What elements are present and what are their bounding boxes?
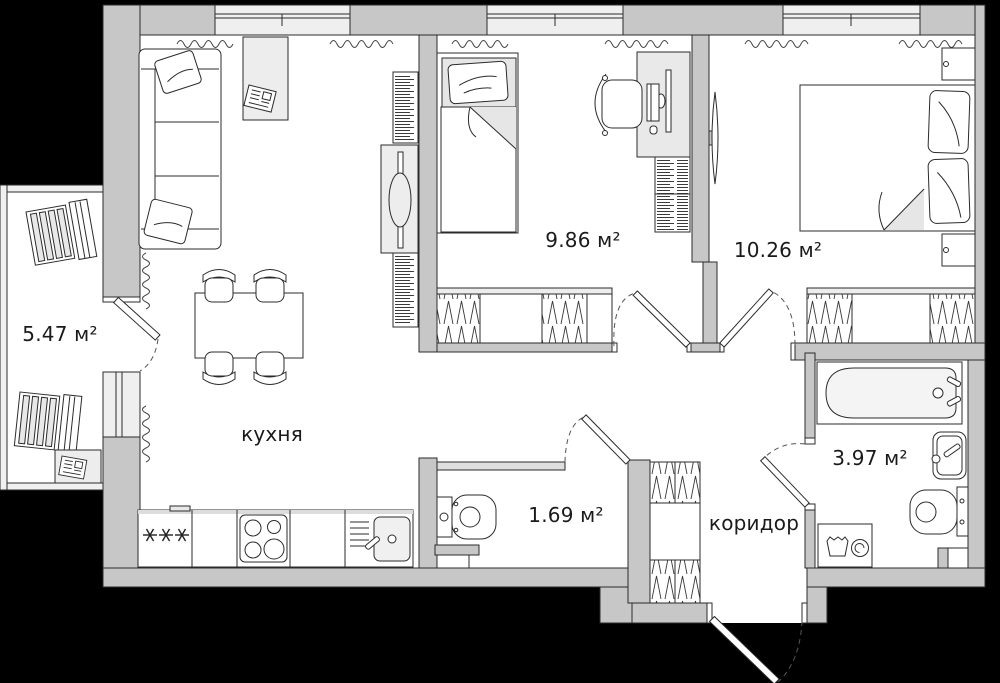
stove-icon [240,515,287,562]
room-label-bedroom-small: 9.86 м² [545,228,620,252]
bathtub-icon [817,362,962,424]
room-label-wc: 1.69 м² [528,503,603,527]
pillow-icon [448,61,509,104]
sofa-icon [139,49,221,249]
toilet-icon [437,495,496,539]
washing-machine-icon [818,524,872,567]
dining-table-icon [195,293,303,358]
tv-icon [381,145,418,253]
toilet-icon [910,487,968,536]
room-label-balcony: 5.47 м² [22,322,97,346]
double-bed-icon [800,85,975,231]
shelf-icon [655,157,690,232]
duct-icon [938,548,968,568]
wardrobe-icon [650,462,700,603]
door-entry [710,616,802,683]
newspaper-icon [59,456,87,479]
room-label-bathroom: 3.97 м² [832,446,907,470]
single-bed-icon [437,53,518,233]
wardrobe-icon [437,288,612,343]
wardrobe-icon [807,288,975,343]
bathroom-sink-icon [932,432,966,479]
desk-chair-icon [595,74,642,136]
floor-plan-image: 5.47 м² кухня 9.86 м² 10.26 м² 1.69 м² к… [0,0,1000,683]
room-label-corridor: коридор [709,511,799,535]
desk-icon [637,52,690,157]
room-label-kitchen: кухня [241,422,303,446]
room-label-bedroom-large: 10.26 м² [734,238,822,262]
